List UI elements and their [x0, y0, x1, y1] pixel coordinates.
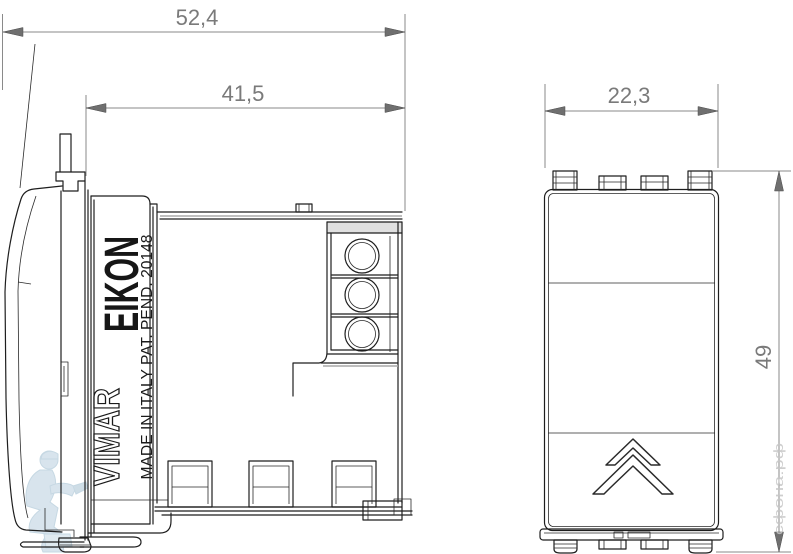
fixing-tooth: [168, 461, 212, 507]
dimension-label-module-height: 49: [751, 345, 776, 369]
fixing-tooth: [332, 461, 376, 507]
module-outline: [545, 190, 719, 531]
bottom-feet: [554, 540, 712, 553]
dimension-41-5: 41,5: [86, 81, 405, 176]
fixing-tooth: [249, 461, 293, 507]
watermark-site-text: сфона.рф: [771, 443, 786, 535]
dimension-22-3: 22,3: [545, 83, 718, 168]
bottom-rail: [155, 461, 412, 520]
watermark-worker-figure: [26, 451, 88, 552]
dimension-drawing: 52,4 41,5 22,3 49 EIKON VIMAR MADE IN IT…: [0, 0, 793, 554]
top-clips: [553, 171, 712, 190]
dimension-label-module-width: 22,3: [608, 83, 651, 108]
dimension-label-overall-depth: 52,4: [176, 5, 219, 30]
technical-drawing-canvas: 52,4 41,5 22,3 49 EIKON VIMAR MADE IN IT…: [0, 0, 793, 554]
origin-note-label: MADE IN ITALY PAT. PEND. 20148: [139, 234, 156, 479]
front-view: [540, 171, 723, 553]
brand-manufacturer-label: VIMAR: [86, 388, 127, 486]
dimension-label-body-depth: 41,5: [222, 81, 265, 106]
up-arrow-symbol-icon: [593, 439, 673, 494]
